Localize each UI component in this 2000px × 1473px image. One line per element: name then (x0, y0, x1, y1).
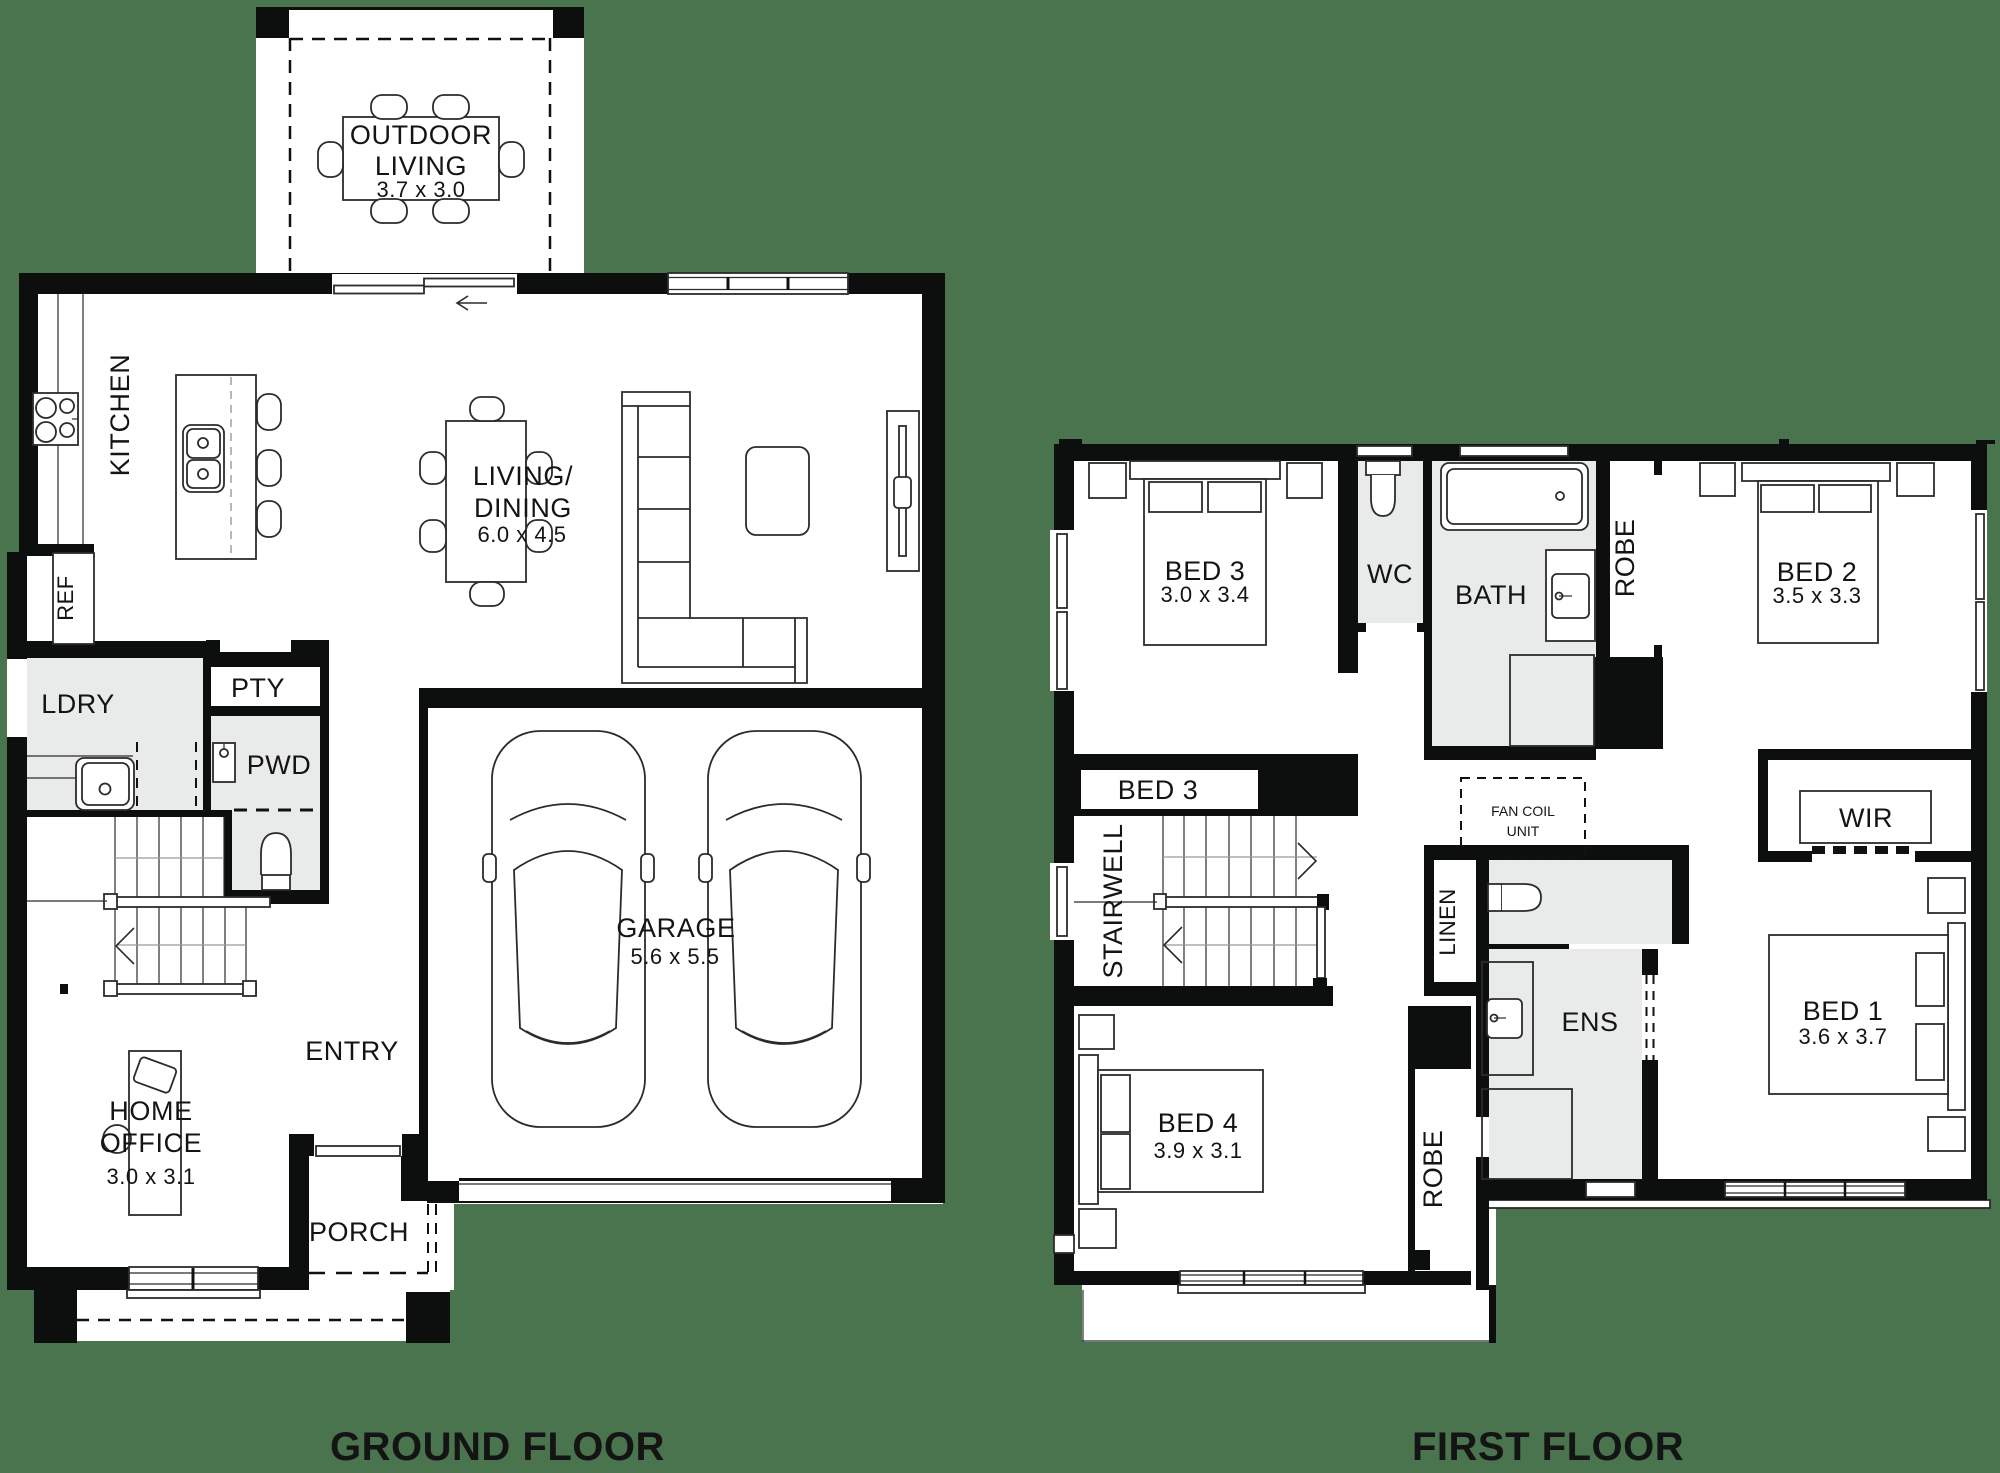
svg-text:PTY: PTY (231, 673, 285, 703)
svg-text:3.0 x 3.1: 3.0 x 3.1 (107, 1164, 196, 1189)
svg-text:OUTDOOR: OUTDOOR (350, 120, 492, 150)
svg-text:UNIT: UNIT (1507, 823, 1540, 839)
svg-text:GROUND FLOOR: GROUND FLOOR (330, 1425, 665, 1469)
svg-text:PWD: PWD (247, 750, 312, 780)
svg-text:FIRST FLOOR: FIRST FLOOR (1412, 1425, 1684, 1469)
svg-text:PORCH: PORCH (309, 1217, 409, 1247)
svg-text:3.9 x 3.1: 3.9 x 3.1 (1154, 1138, 1243, 1163)
svg-text:BED 3: BED 3 (1118, 775, 1199, 805)
svg-text:STAIRWELL: STAIRWELL (1098, 823, 1128, 978)
svg-text:LDRY: LDRY (41, 689, 115, 719)
svg-text:WC: WC (1367, 559, 1413, 589)
svg-text:3.0 x 3.4: 3.0 x 3.4 (1161, 582, 1250, 607)
svg-text:WIR: WIR (1839, 803, 1893, 833)
svg-text:ROBE: ROBE (1418, 1130, 1448, 1209)
svg-text:ENTRY: ENTRY (305, 1036, 399, 1066)
svg-text:HOME: HOME (109, 1096, 192, 1126)
svg-text:BATH: BATH (1455, 580, 1527, 610)
svg-text:3.6 x 3.7: 3.6 x 3.7 (1799, 1024, 1888, 1049)
svg-text:ENS: ENS (1561, 1007, 1618, 1037)
svg-text:REF: REF (53, 575, 78, 621)
svg-text:BED 4: BED 4 (1158, 1108, 1239, 1138)
svg-text:KITCHEN: KITCHEN (105, 354, 135, 477)
svg-text:6.0 x 4.5: 6.0 x 4.5 (478, 522, 567, 547)
svg-text:LINEN: LINEN (1435, 888, 1460, 955)
svg-text:3.7 x 3.0: 3.7 x 3.0 (377, 177, 466, 202)
svg-text:BED 1: BED 1 (1803, 996, 1884, 1026)
svg-text:3.5 x 3.3: 3.5 x 3.3 (1773, 583, 1862, 608)
svg-text:5.6 x 5.5: 5.6 x 5.5 (631, 944, 720, 969)
svg-text:LIVING/: LIVING/ (473, 461, 573, 491)
svg-text:OFFICE: OFFICE (100, 1128, 203, 1158)
svg-text:ROBE: ROBE (1610, 519, 1640, 598)
svg-text:FAN COIL: FAN COIL (1491, 803, 1555, 819)
svg-text:DINING: DINING (474, 493, 572, 523)
svg-text:GARAGE: GARAGE (616, 913, 735, 943)
